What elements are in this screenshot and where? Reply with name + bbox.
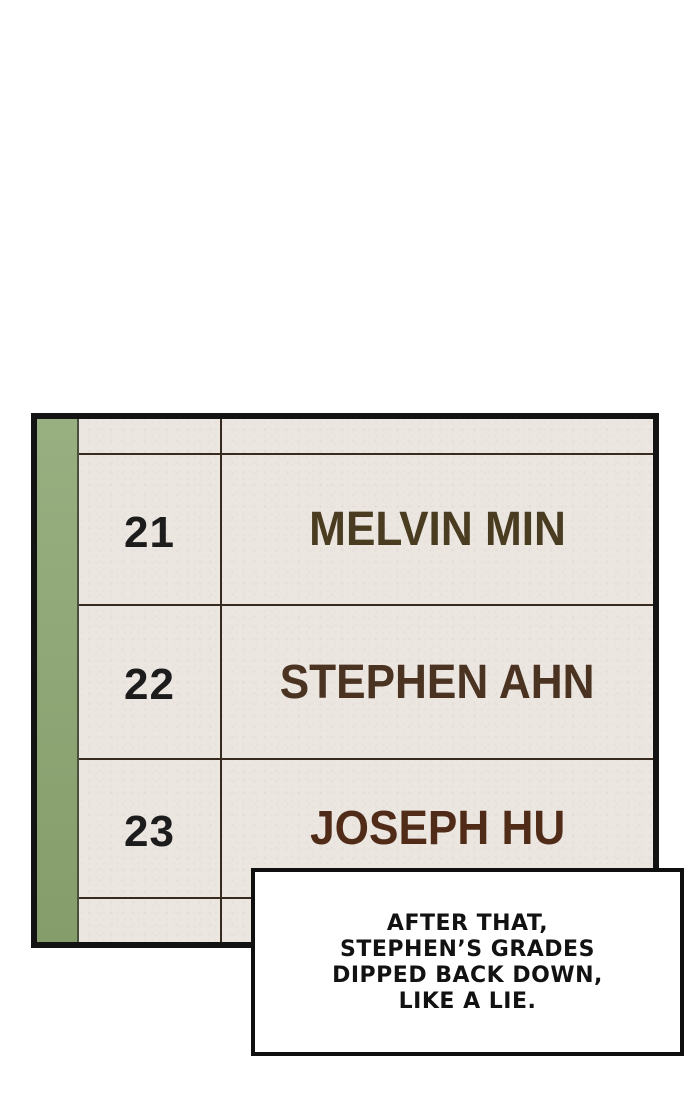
student-name: JOSEPH HU	[310, 801, 565, 856]
rank-cell: 22	[79, 606, 220, 758]
spine	[37, 419, 79, 942]
student-name: STEPHEN AHN	[280, 655, 595, 710]
caption-line: AFTER THAT,	[387, 911, 548, 937]
name-cell: MELVIN MIN	[222, 455, 653, 604]
roster-paper: 21 MELVIN MIN 22 STEPHEN AHN 23 JOSEPH H…	[37, 419, 653, 942]
rank-cell: 21	[79, 455, 220, 604]
caption-line: STEPHEN’S GRADES	[340, 937, 595, 963]
rank-value: 23	[124, 807, 175, 857]
caption-line: LIKE A LIE.	[399, 989, 537, 1015]
student-name: MELVIN MIN	[309, 502, 566, 557]
rank-cell: 23	[79, 760, 220, 897]
rank-value: 21	[124, 508, 175, 558]
narration-caption-box: AFTER THAT, STEPHEN’S GRADES DIPPED BACK…	[251, 868, 684, 1056]
caption-line: DIPPED BACK DOWN,	[332, 963, 603, 989]
rank-value: 22	[124, 660, 175, 710]
name-cell: STEPHEN AHN	[222, 606, 653, 758]
